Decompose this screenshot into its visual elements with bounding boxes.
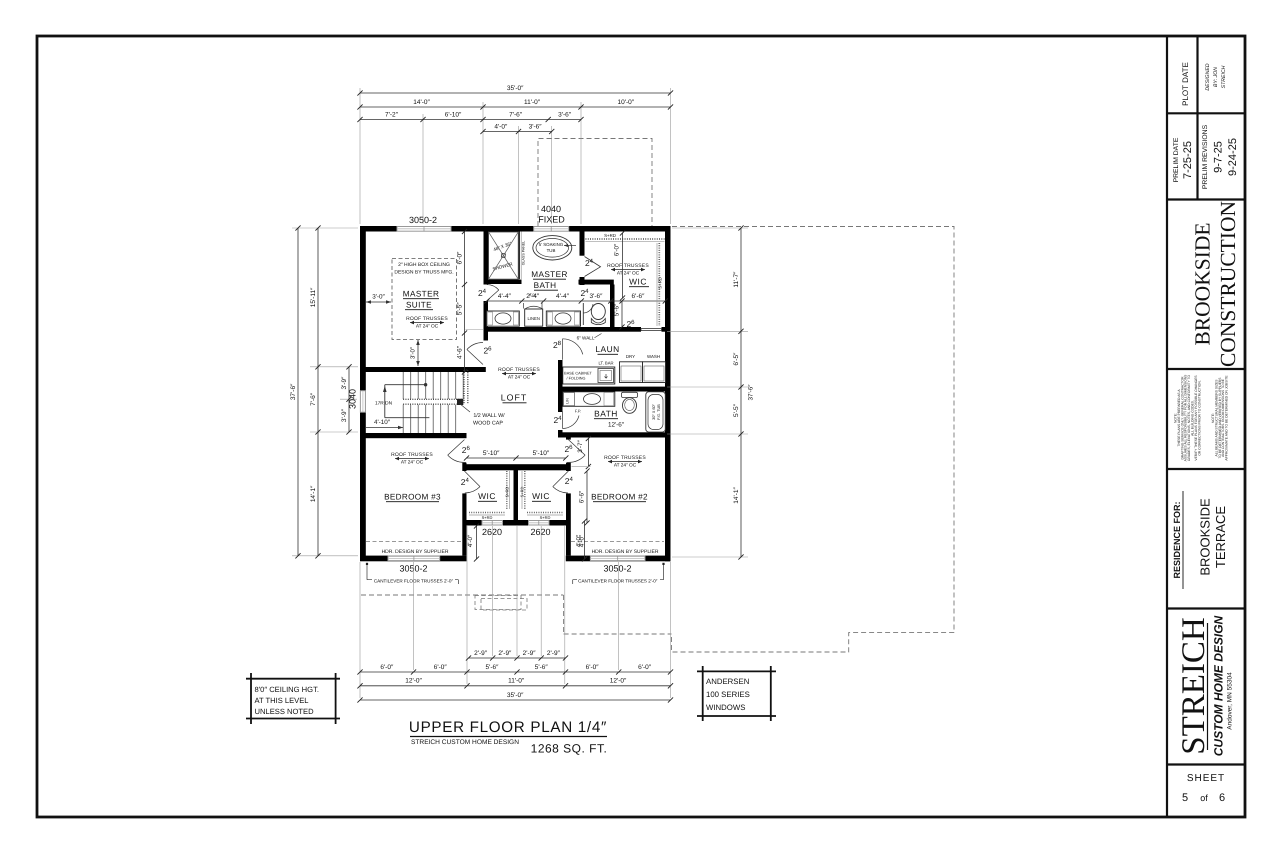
svg-text:BY: JON: BY: JON — [1213, 67, 1219, 87]
svg-text:5'-6″: 5'-6″ — [535, 664, 549, 671]
svg-text:STREICH CUSTOM HOME DESIGN: STREICH CUSTOM HOME DESIGN — [411, 739, 519, 746]
svg-text:CONSTRUCTION: CONSTRUCTION — [1216, 201, 1240, 368]
svg-text:BEDROOM #3: BEDROOM #3 — [384, 493, 441, 502]
svg-text:WOOD CAP: WOOD CAP — [473, 421, 503, 427]
svg-text:12'-0″: 12'-0″ — [610, 678, 627, 685]
svg-text:ROOF TRUSSES: ROOF TRUSSES — [391, 452, 433, 458]
svg-text:S+RD: S+RD — [520, 486, 525, 497]
svg-text:9-7-25: 9-7-25 — [1213, 141, 1225, 173]
svg-text:PRELIM DATE: PRELIM DATE — [1173, 137, 1180, 182]
svg-text:10'-0″: 10'-0″ — [618, 99, 635, 106]
svg-text:F.P.: F.P. — [575, 409, 581, 414]
svg-text:4'-0″: 4'-0″ — [494, 123, 508, 130]
svg-text:LOFT: LOFT — [501, 393, 527, 403]
svg-text:4'-10″: 4'-10″ — [374, 419, 391, 426]
svg-text:11'-7″: 11'-7″ — [733, 271, 740, 288]
svg-text:3050-2: 3050-2 — [409, 215, 437, 225]
svg-text:6'-10″: 6'-10″ — [445, 111, 462, 118]
svg-text:3050-2: 3050-2 — [603, 564, 631, 574]
svg-text:ROOF TRUSSES: ROOF TRUSSES — [406, 316, 448, 322]
svg-text:2620: 2620 — [482, 527, 502, 537]
svg-text:17R DN: 17R DN — [375, 401, 393, 407]
svg-text:/ FOLDING: / FOLDING — [567, 377, 586, 381]
svg-text:4040: 4040 — [541, 204, 561, 214]
svg-text:DESIGN BY TRUSS MFG.: DESIGN BY TRUSS MFG. — [394, 270, 453, 276]
svg-text:WINDOWS: WINDOWS — [706, 703, 745, 712]
svg-text:12'-6″: 12'-6″ — [608, 422, 625, 429]
svg-text:BROOKSIDE: BROOKSIDE — [1198, 498, 1213, 576]
svg-text:3'-6″: 3'-6″ — [529, 123, 543, 130]
svg-text:35'-0″: 35'-0″ — [507, 692, 524, 699]
svg-text:S+RD: S+RD — [540, 515, 551, 520]
svg-text:5' SOAKING: 5' SOAKING — [539, 242, 564, 247]
svg-text:F.P.: F.P. — [529, 293, 535, 298]
svg-text:12'-0″: 12'-0″ — [405, 678, 422, 685]
svg-text:3'-9″: 3'-9″ — [341, 408, 348, 422]
svg-text:5'-6″: 5'-6″ — [614, 303, 621, 316]
svg-text:AT 24" OC: AT 24" OC — [508, 375, 531, 381]
svg-text:6'-6″: 6'-6″ — [632, 293, 646, 300]
svg-text:APPROXIMATE AND TO BE DETERMIN: APPROXIMATE AND TO BE DETERMINED ON JOBS… — [1225, 375, 1229, 461]
svg-text:6'-0″: 6'-0″ — [586, 664, 600, 671]
svg-text:6'-0″: 6'-0″ — [457, 251, 464, 265]
svg-text:S+RD: S+RD — [604, 233, 616, 238]
svg-text:4'-0″: 4'-0″ — [576, 534, 583, 547]
svg-text:WIC: WIC — [532, 491, 550, 501]
svg-text:1/2 WALL W/: 1/2 WALL W/ — [473, 413, 505, 419]
svg-text:AT 24" OC: AT 24" OC — [416, 324, 439, 330]
svg-text:6: 6 — [1219, 792, 1225, 804]
svg-text:SUITE: SUITE — [406, 301, 432, 310]
svg-text:2'-9″: 2'-9″ — [547, 650, 561, 657]
svg-text:Andover, MN 55304: Andover, MN 55304 — [1227, 672, 1234, 730]
svg-text:WASH: WASH — [647, 354, 660, 359]
svg-text:4'-4″: 4'-4″ — [498, 293, 512, 300]
svg-text:UNLESS NOTED: UNLESS NOTED — [255, 707, 315, 716]
svg-text:14'-1″: 14'-1″ — [310, 485, 317, 502]
svg-text:S+RD: S+RD — [482, 515, 493, 520]
svg-text:LAUN: LAUN — [595, 344, 619, 354]
svg-text:3'-6″: 3'-6″ — [558, 111, 572, 118]
svg-text:LT. BAR: LT. BAR — [598, 361, 613, 366]
svg-text:2'-9″: 2'-9″ — [523, 650, 537, 657]
svg-text:7'-6″: 7'-6″ — [310, 392, 317, 406]
svg-text:4'-4″: 4'-4″ — [556, 293, 570, 300]
svg-text:F.G. TUB: F.G. TUB — [657, 404, 661, 420]
svg-text:5'-10″: 5'-10″ — [483, 450, 500, 457]
svg-text:S+RD: S+RD — [658, 277, 663, 289]
svg-text:100 SERIES: 100 SERIES — [706, 690, 750, 699]
svg-text:STREICH: STREICH — [1176, 617, 1212, 755]
svg-text:TUB: TUB — [547, 248, 556, 253]
svg-text:5: 5 — [1182, 792, 1188, 804]
svg-text:BATH: BATH — [594, 409, 618, 419]
svg-text:11'-0″: 11'-0″ — [524, 99, 541, 106]
svg-text:2″ HIGH BOX CEILING: 2″ HIGH BOX CEILING — [398, 262, 450, 268]
svg-text:3040: 3040 — [348, 389, 358, 409]
svg-text:2620: 2620 — [530, 527, 550, 537]
svg-text:4'-0″: 4'-0″ — [467, 534, 474, 547]
svg-text:11'-0″: 11'-0″ — [508, 678, 525, 685]
svg-text:37'-6″: 37'-6″ — [748, 384, 755, 401]
svg-text:7'-6″: 7'-6″ — [509, 111, 523, 118]
svg-text:30″ X 60″: 30″ X 60″ — [652, 403, 656, 419]
svg-text:3'-0″: 3'-0″ — [372, 294, 385, 301]
svg-text:2'-9″: 2'-9″ — [474, 650, 488, 657]
svg-text:AT THIS LEVEL: AT THIS LEVEL — [255, 696, 309, 705]
svg-text:DESIGNED: DESIGNED — [1205, 63, 1211, 90]
svg-text:2'-9″: 2'-9″ — [498, 650, 512, 657]
svg-text:35'-0″: 35'-0″ — [507, 85, 524, 92]
svg-text:5'-6″: 5'-6″ — [486, 664, 500, 671]
svg-text:6'-0″: 6'-0″ — [638, 664, 652, 671]
svg-text:STREICH: STREICH — [1221, 65, 1227, 88]
svg-text:UPPER FLOOR PLAN 1/4″: UPPER FLOOR PLAN 1/4″ — [409, 719, 607, 736]
svg-text:GLASS PANEL: GLASS PANEL — [522, 241, 526, 266]
svg-text:15'-11″: 15'-11″ — [310, 287, 317, 307]
svg-text:AT 24" OC: AT 24" OC — [401, 460, 424, 466]
svg-text:6'-0″: 6'-0″ — [380, 664, 394, 671]
svg-text:37'-6″: 37'-6″ — [290, 383, 297, 400]
svg-text:6'-6″: 6'-6″ — [579, 490, 586, 503]
svg-text:MASTER: MASTER — [531, 270, 568, 279]
svg-text:3'-6″: 3'-6″ — [590, 293, 604, 300]
svg-text:MASTER: MASTER — [403, 290, 440, 299]
svg-text:ANDERSEN: ANDERSEN — [706, 677, 749, 686]
svg-text:5'-5″: 5'-5″ — [457, 302, 464, 316]
svg-text:BASE CABINET: BASE CABINET — [564, 372, 592, 376]
svg-text:5'-10″: 5'-10″ — [533, 450, 550, 457]
svg-text:5'-5″: 5'-5″ — [733, 403, 740, 417]
svg-text:7'-2″: 7'-2″ — [385, 111, 399, 118]
svg-text:RESIDENCE FOR:: RESIDENCE FOR: — [1172, 501, 1182, 578]
svg-text:WIC: WIC — [478, 491, 496, 501]
svg-text:3'-7″: 3'-7″ — [577, 439, 584, 452]
svg-text:ROOF TRUSSES: ROOF TRUSSES — [604, 455, 646, 461]
svg-text:AT 24" OC: AT 24" OC — [614, 463, 637, 469]
svg-text:BROOKSIDE: BROOKSIDE — [1191, 222, 1215, 345]
svg-text:LIN: LIN — [566, 398, 570, 404]
svg-text:14'-1″: 14'-1″ — [733, 487, 740, 504]
svg-text:LINEN: LINEN — [528, 316, 540, 321]
svg-text:HDR. DESIGN BY SUPPLIER: HDR. DESIGN BY SUPPLIER — [592, 549, 659, 555]
svg-text:9-24-25: 9-24-25 — [1227, 138, 1239, 176]
svg-text:3'-0″: 3'-0″ — [410, 346, 417, 359]
svg-text:ROOF TRUSSES: ROOF TRUSSES — [498, 367, 540, 373]
svg-text:SHEET: SHEET — [1187, 773, 1225, 784]
svg-text:TERRACE: TERRACE — [1213, 506, 1228, 568]
svg-text:WIC: WIC — [629, 277, 647, 287]
svg-text:CUSTOM HOME DESIGN: CUSTOM HOME DESIGN — [1212, 615, 1226, 756]
svg-text:BATH: BATH — [534, 281, 557, 290]
svg-text:HDR. DESIGN BY SUPPLIER: HDR. DESIGN BY SUPPLIER — [382, 549, 449, 555]
svg-text:S+RD: S+RD — [505, 486, 510, 497]
svg-text:OR CORRECTIONS PRIOR TO CONSTR: OR CORRECTIONS PRIOR TO CONSTRUCTION. — [1197, 380, 1201, 455]
svg-text:PLOT DATE: PLOT DATE — [1181, 62, 1190, 106]
svg-text:8'0″ CEILING HGT.: 8'0″ CEILING HGT. — [255, 685, 319, 694]
svg-text:6'-0″: 6'-0″ — [614, 243, 621, 256]
svg-text:6'-0″: 6'-0″ — [434, 664, 448, 671]
svg-text:CANTILEVER FLOOR TRUSSES 2'-0″: CANTILEVER FLOOR TRUSSES 2'-0″ — [578, 579, 658, 584]
svg-text:7-25-25: 7-25-25 — [1182, 141, 1194, 179]
svg-text:PRELIM REVISIONS: PRELIM REVISIONS — [1202, 124, 1209, 189]
svg-text:14'-0″: 14'-0″ — [413, 99, 430, 106]
svg-text:BEDROOM #2: BEDROOM #2 — [591, 493, 648, 502]
svg-text:DRY: DRY — [626, 354, 635, 359]
svg-text:FIXED: FIXED — [538, 215, 565, 225]
svg-text:ROOF TRUSSES: ROOF TRUSSES — [607, 263, 649, 269]
svg-text:3'-9″: 3'-9″ — [341, 376, 348, 390]
svg-text:6'-5″: 6'-5″ — [733, 352, 740, 366]
svg-text:4'-6″: 4'-6″ — [457, 345, 464, 359]
svg-text:1268 SQ. FT.: 1268 SQ. FT. — [531, 742, 608, 756]
svg-text:6″ WALL: 6″ WALL — [577, 336, 595, 341]
svg-text:of: of — [1200, 793, 1208, 803]
